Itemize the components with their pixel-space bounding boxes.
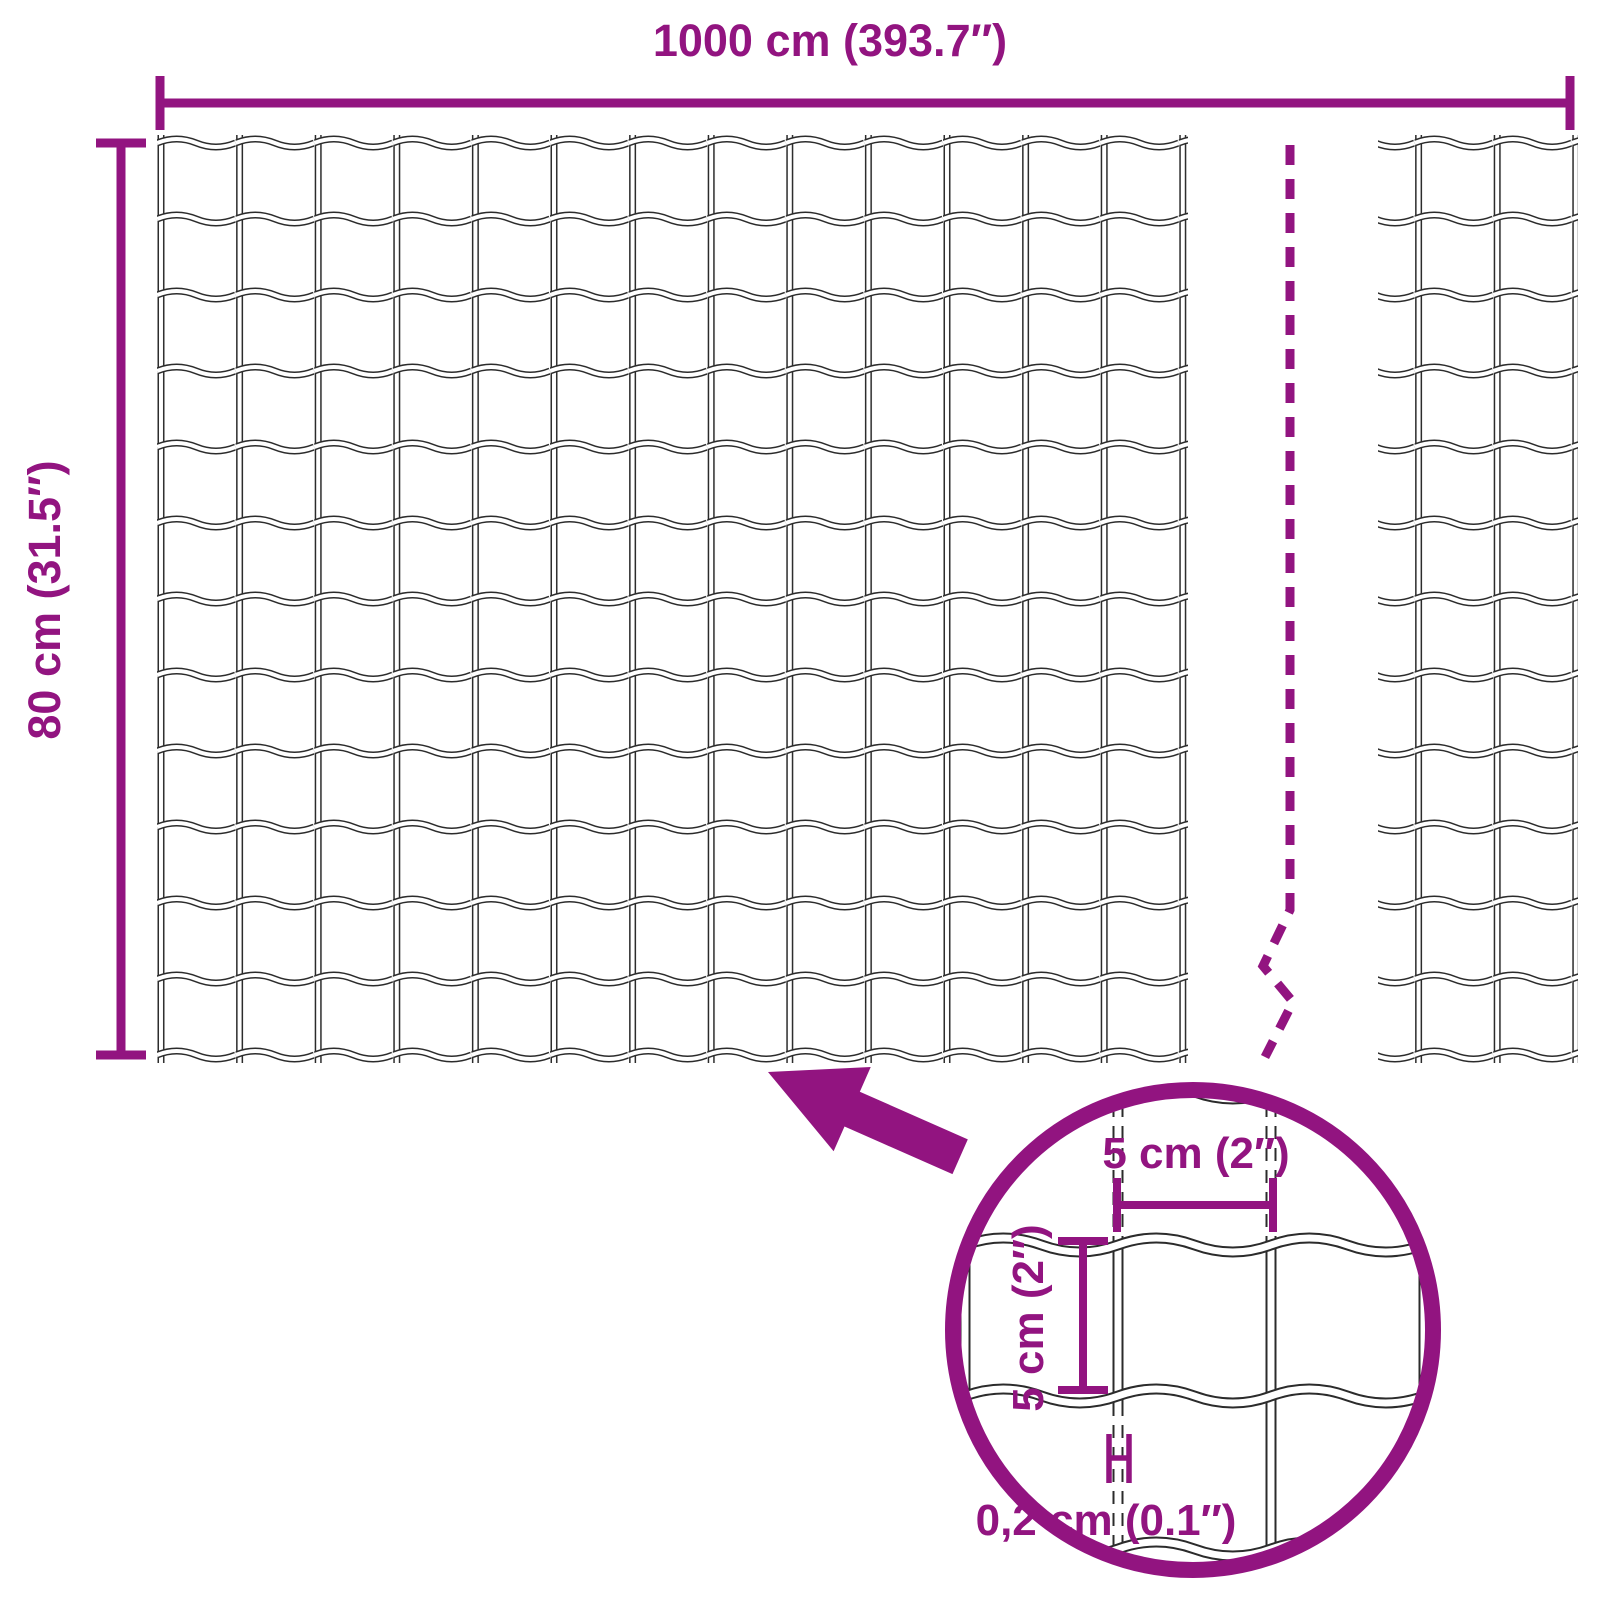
product-dimension-diagram: 1000 cm (393.7″) 80 cm (31.5″) [0,0,1600,1600]
cell-height-label: 5 cm (2″) [1004,1224,1053,1411]
break-line [1263,145,1293,1057]
cell-width-label: 5 cm (2″) [1102,1129,1289,1178]
height-dimension-label: 80 cm (31.5″) [19,460,70,739]
width-dimension-label: 1000 cm (393.7″) [653,15,1007,66]
wire-thickness-label: 0,2 cm (0.1″) [976,1496,1237,1545]
fence-mesh-main [157,135,1188,1063]
fence-mesh-continuation [1378,135,1578,1063]
width-dimension: 1000 cm (393.7″) [160,15,1570,130]
height-dimension: 80 cm (31.5″) [19,143,146,1055]
diagram-canvas: 1000 cm (393.7″) 80 cm (31.5″) [0,0,1600,1600]
